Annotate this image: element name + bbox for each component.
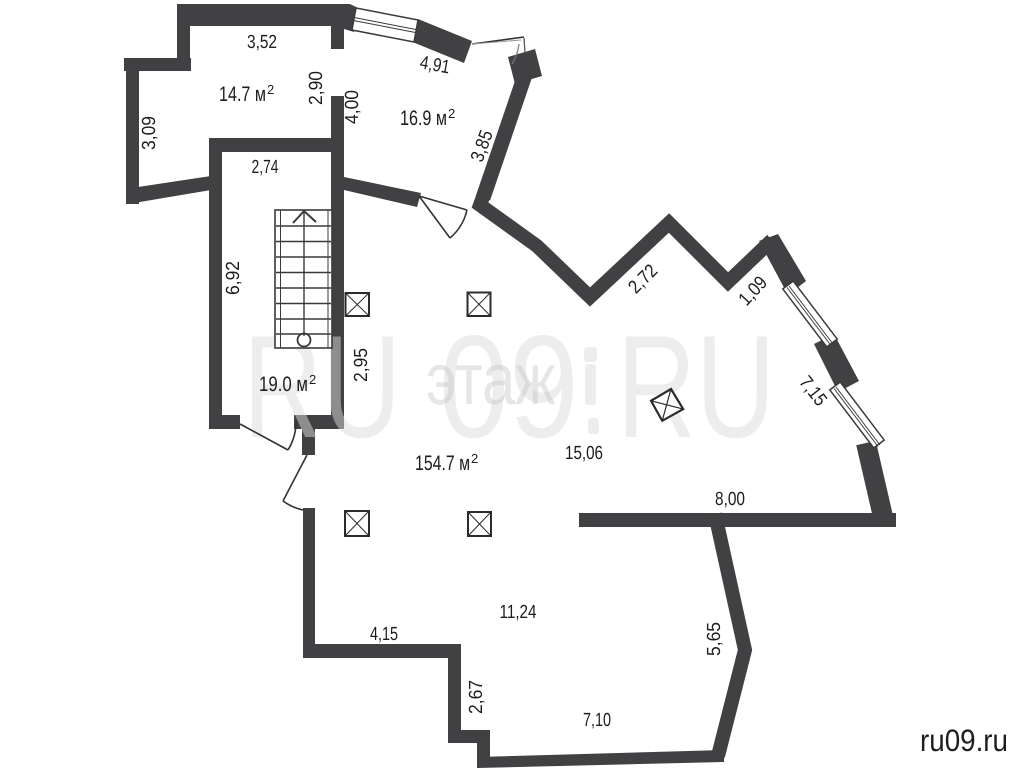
svg-text:2: 2 [267, 82, 274, 97]
svg-text:ru09.ru: ru09.ru [920, 723, 1008, 758]
svg-text:3,52: 3,52 [247, 32, 277, 53]
svg-text:7,10: 7,10 [583, 710, 611, 731]
svg-text:14.7 м: 14.7 м [219, 83, 266, 106]
svg-text:2,90: 2,90 [306, 71, 327, 105]
svg-text:2,67: 2,67 [466, 680, 487, 714]
svg-text:2,95: 2,95 [351, 348, 372, 382]
svg-text:3,09: 3,09 [139, 116, 160, 150]
svg-text:5,65: 5,65 [704, 622, 725, 656]
svg-text:4,15: 4,15 [370, 624, 398, 645]
svg-text:4,00: 4,00 [342, 90, 363, 124]
svg-text:11,24: 11,24 [500, 602, 537, 623]
svg-text:2,74: 2,74 [252, 157, 279, 178]
svg-text:RU: RU [617, 305, 775, 468]
svg-text:этаж: этаж [426, 339, 555, 420]
svg-text:2: 2 [448, 106, 455, 121]
svg-text:8,00: 8,00 [715, 489, 745, 510]
svg-text:16.9 м: 16.9 м [400, 107, 447, 130]
svg-text:2: 2 [309, 372, 316, 387]
svg-text:15,06: 15,06 [565, 443, 603, 464]
svg-text:19.0 м: 19.0 м [259, 373, 308, 396]
svg-text:6,92: 6,92 [223, 261, 244, 295]
svg-text:2: 2 [471, 451, 478, 466]
svg-text:154.7 м: 154.7 м [415, 452, 470, 475]
